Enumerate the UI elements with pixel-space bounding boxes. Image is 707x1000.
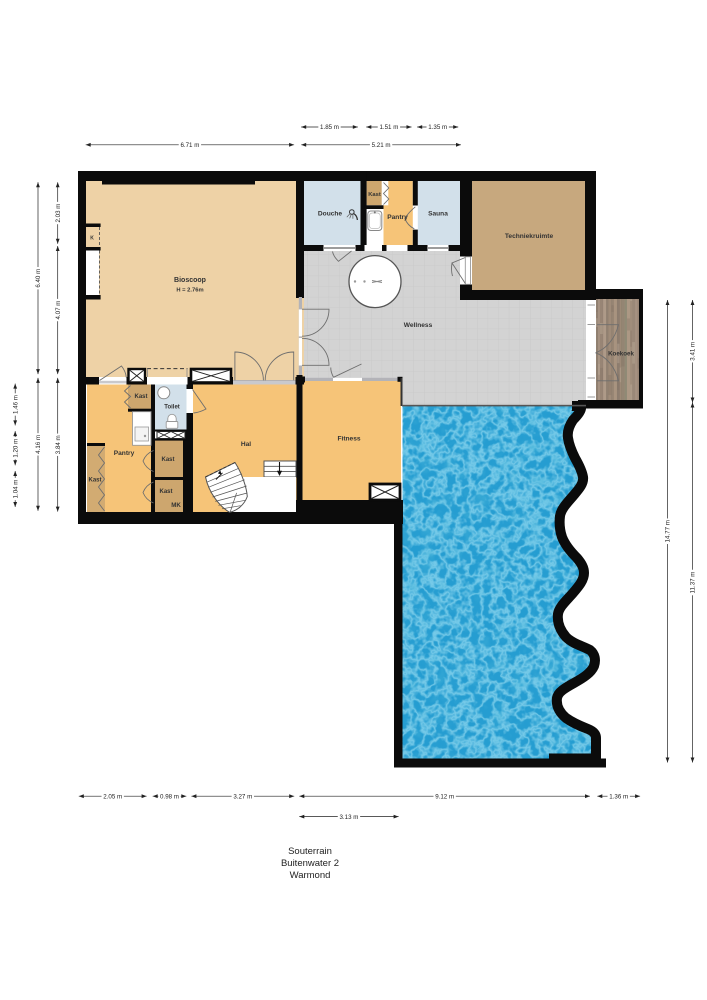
svg-text:Kast: Kast bbox=[134, 394, 147, 400]
svg-text:1.51 m: 1.51 m bbox=[379, 124, 398, 131]
svg-text:Kast: Kast bbox=[161, 457, 174, 463]
svg-text:Sauna: Sauna bbox=[428, 211, 448, 218]
svg-text:Wellness: Wellness bbox=[404, 322, 433, 329]
svg-text:MK: MK bbox=[171, 502, 181, 509]
svg-text:Hal: Hal bbox=[241, 441, 251, 448]
svg-text:3.84 m: 3.84 m bbox=[55, 435, 62, 454]
svg-text:1.85 m: 1.85 m bbox=[320, 124, 339, 131]
svg-text:Toilet: Toilet bbox=[164, 405, 180, 411]
svg-text:Bioscoop: Bioscoop bbox=[174, 277, 206, 284]
svg-text:0.98 m: 0.98 m bbox=[160, 793, 179, 800]
svg-text:Buitenwater 2: Buitenwater 2 bbox=[281, 858, 339, 869]
svg-text:4.07 m: 4.07 m bbox=[55, 301, 62, 320]
svg-text:Fitness: Fitness bbox=[337, 436, 360, 443]
svg-text:H = 2.76m: H = 2.76m bbox=[176, 288, 203, 294]
svg-text:1.35 m: 1.35 m bbox=[428, 124, 447, 131]
svg-text:Techniekruimte: Techniekruimte bbox=[505, 233, 554, 240]
svg-text:6.40 m: 6.40 m bbox=[35, 269, 42, 288]
svg-text:1.20 m: 1.20 m bbox=[12, 439, 19, 458]
svg-text:1.36 m: 1.36 m bbox=[609, 793, 628, 800]
svg-text:Kast: Kast bbox=[159, 489, 172, 495]
svg-text:14.77 m: 14.77 m bbox=[665, 520, 672, 542]
svg-text:K: K bbox=[90, 236, 94, 242]
svg-text:3.27 m: 3.27 m bbox=[233, 793, 252, 800]
svg-text:2.03 m: 2.03 m bbox=[55, 204, 62, 223]
svg-text:Pantry: Pantry bbox=[387, 214, 408, 221]
svg-text:4.16 m: 4.16 m bbox=[35, 435, 42, 454]
svg-text:Kast: Kast bbox=[88, 478, 101, 484]
svg-text:9.12 m: 9.12 m bbox=[435, 793, 454, 800]
svg-text:11.37 m: 11.37 m bbox=[690, 572, 697, 594]
svg-text:3.13 m: 3.13 m bbox=[339, 814, 358, 821]
svg-text:Kast: Kast bbox=[368, 192, 381, 198]
svg-text:Koekoek: Koekoek bbox=[608, 351, 634, 358]
svg-text:6.71 m: 6.71 m bbox=[180, 142, 199, 149]
svg-text:1.04 m: 1.04 m bbox=[12, 480, 19, 499]
svg-text:5.21 m: 5.21 m bbox=[372, 142, 391, 149]
svg-text:1.46 m: 1.46 m bbox=[12, 395, 19, 414]
svg-text:Pantry: Pantry bbox=[114, 450, 135, 457]
svg-text:Souterrain: Souterrain bbox=[288, 846, 332, 857]
svg-text:Douche: Douche bbox=[318, 211, 343, 218]
svg-text:2.05 m: 2.05 m bbox=[103, 793, 122, 800]
svg-text:Warmond: Warmond bbox=[290, 870, 331, 881]
svg-text:3.41 m: 3.41 m bbox=[690, 342, 697, 361]
